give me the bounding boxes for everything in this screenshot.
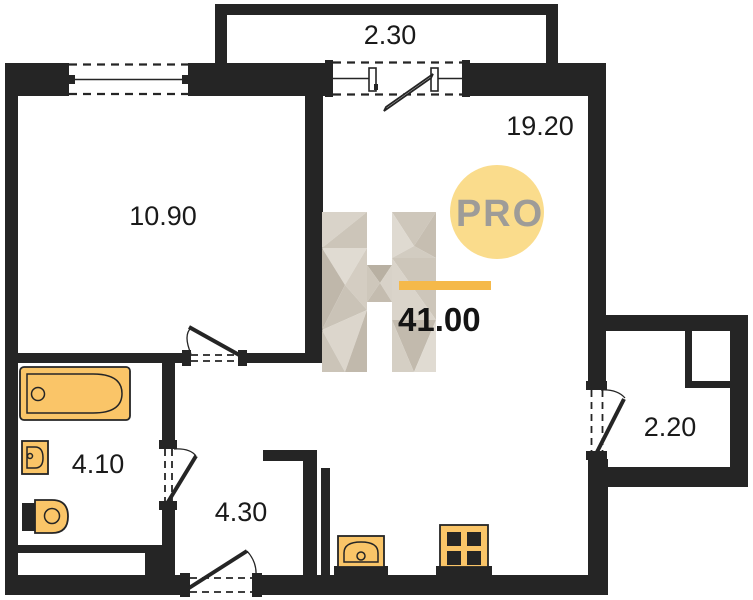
window-room-left [69,65,188,95]
label-balcony-right: 2.20 [644,412,697,442]
pro-badge-label: PRO [456,193,544,235]
washbasin-icon [22,441,48,474]
door-bathroom [159,440,196,510]
label-room-left: 10.90 [129,201,197,231]
logo-h-icon [322,212,436,372]
label-total-area: 41.00 [398,301,481,338]
toilet-icon [22,500,68,533]
pro-badge: PRO [450,165,544,259]
accent-underline [399,281,491,290]
label-hallway: 4.30 [215,497,268,527]
label-balcony-top: 2.30 [364,20,417,50]
balcony-window-door-unit [325,60,470,111]
label-bathroom: 4.10 [72,449,125,479]
bathtub-icon [20,367,130,420]
balcony-door-leaf [384,74,433,111]
floor-plan-canvas: PRO 2.30 10.90 19.20 4.10 4.30 2.20 41.0… [0,0,753,600]
door-entrance [180,551,262,597]
kitchen-sink-icon [334,536,388,575]
floor-plan: PRO 2.30 10.90 19.20 4.10 4.30 2.20 41.0… [0,0,753,600]
watermark-logo: PRO [322,165,544,372]
door-room-left [182,327,247,366]
stove-icon [436,525,492,575]
door-balcony-right [586,381,625,460]
label-room-right: 19.20 [506,111,574,141]
